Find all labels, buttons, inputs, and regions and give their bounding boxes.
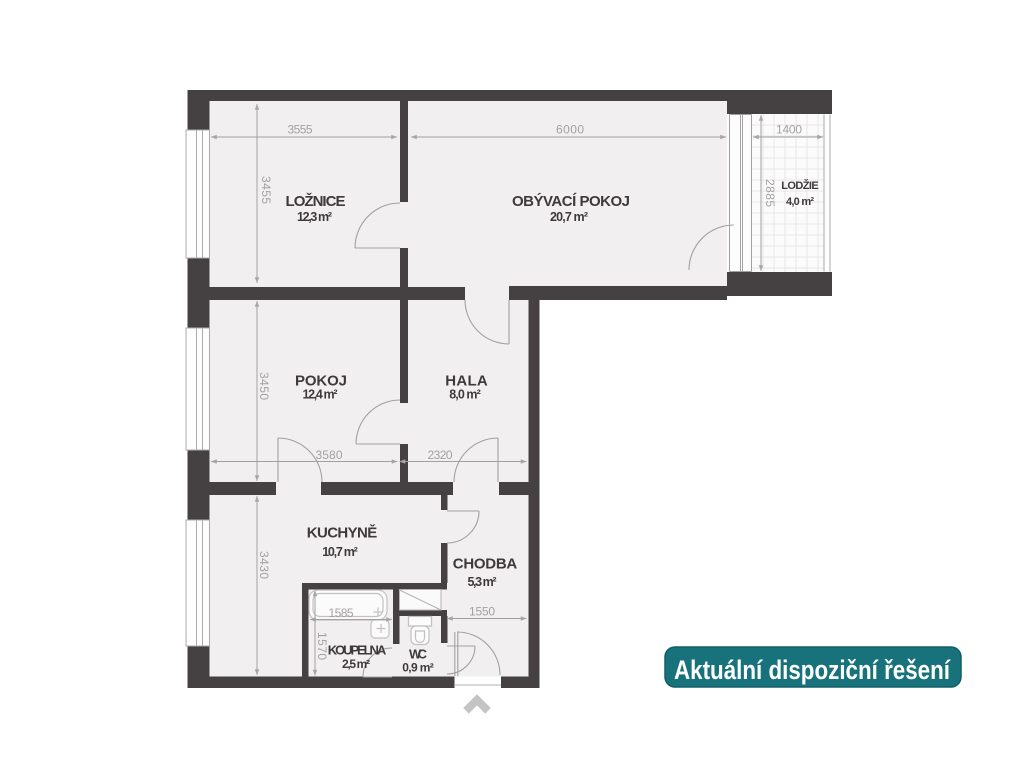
svg-text:1585: 1585 [329,606,354,620]
svg-text:3580: 3580 [316,448,343,462]
svg-text:1400: 1400 [776,123,802,137]
svg-text:4,0 m²: 4,0 m² [786,196,814,208]
svg-text:Aktuální dispoziční řešení: Aktuální dispoziční řešení [674,655,951,685]
svg-text:KOUPELNA: KOUPELNA [328,643,387,658]
svg-text:2,5 m²: 2,5 m² [342,657,370,671]
svg-text:LODŽIE: LODŽIE [781,179,819,192]
svg-text:3555: 3555 [288,123,313,137]
svg-text:12,4 m²: 12,4 m² [303,388,338,402]
svg-text:1550: 1550 [469,605,495,619]
svg-text:6000: 6000 [556,123,584,137]
svg-text:2320: 2320 [428,448,453,462]
svg-text:LOŽNICE: LOŽNICE [286,192,346,210]
svg-text:10,7 m²: 10,7 m² [322,545,358,559]
svg-text:KUCHYNĚ: KUCHYNĚ [307,524,378,542]
svg-text:CHODBA: CHODBA [453,556,518,573]
svg-text:3455: 3455 [259,176,273,204]
svg-text:8,0 m²: 8,0 m² [449,388,481,402]
svg-text:12,3 m²: 12,3 m² [297,210,332,224]
svg-text:WC: WC [409,647,428,662]
svg-text:3430: 3430 [257,551,271,579]
svg-text:20,7 m²: 20,7 m² [550,210,588,224]
svg-text:OBÝVACÍ POKOJ: OBÝVACÍ POKOJ [512,192,630,210]
svg-text:2885: 2885 [763,179,777,207]
svg-text:0,9 m²: 0,9 m² [402,661,434,675]
svg-text:3450: 3450 [257,372,271,400]
svg-text:5,3 m²: 5,3 m² [468,575,497,589]
